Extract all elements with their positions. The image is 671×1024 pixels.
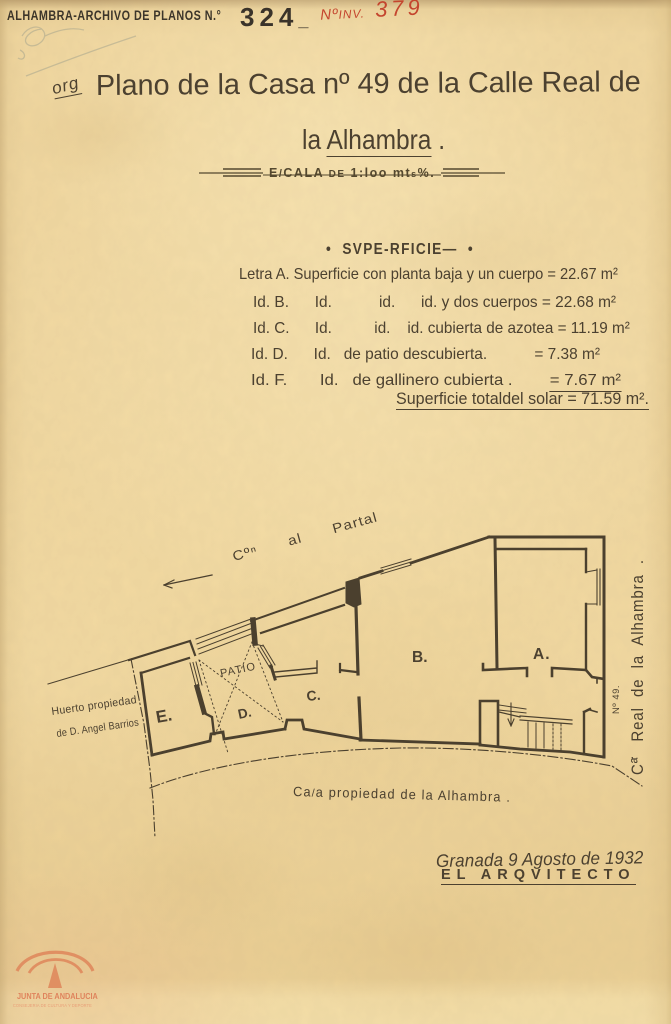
svg-text:Huerto propiedad: Huerto propiedad bbox=[51, 694, 138, 718]
svg-text:Ca/a propiedad de la Alhambra: Ca/a propiedad de la Alhambra . bbox=[293, 784, 511, 805]
svg-text:PATIO: PATIO bbox=[219, 661, 257, 680]
svg-text:Cª̇ Real de la Alhambra: Cª̇ Real de la Alhambra . bbox=[629, 559, 647, 775]
svg-text:D.: D. bbox=[237, 704, 253, 721]
svg-text:Nº 49.: Nº 49. bbox=[611, 685, 621, 714]
svg-text:CONSEJERIA DE CULTURA Y DEPORT: CONSEJERIA DE CULTURA Y DEPORTE bbox=[13, 1003, 92, 1008]
svg-text:A.: A. bbox=[533, 646, 551, 663]
svg-text:JUNTA DE ANDALUCIA: JUNTA DE ANDALUCIA bbox=[17, 991, 98, 1001]
svg-text:E/CALA DE 1:loo mts%.: E/CALA DE 1:loo mts%. bbox=[269, 166, 435, 180]
svg-text:E.: E. bbox=[154, 705, 173, 727]
svg-text:Cºⁿ al Partal: Cºⁿ al Partal bbox=[231, 509, 380, 564]
svg-text:de D. Angel Barrios: de D. Angel Barrios bbox=[56, 717, 140, 740]
svg-text:C.: C. bbox=[306, 687, 322, 704]
svg-text:B.: B. bbox=[412, 649, 428, 666]
